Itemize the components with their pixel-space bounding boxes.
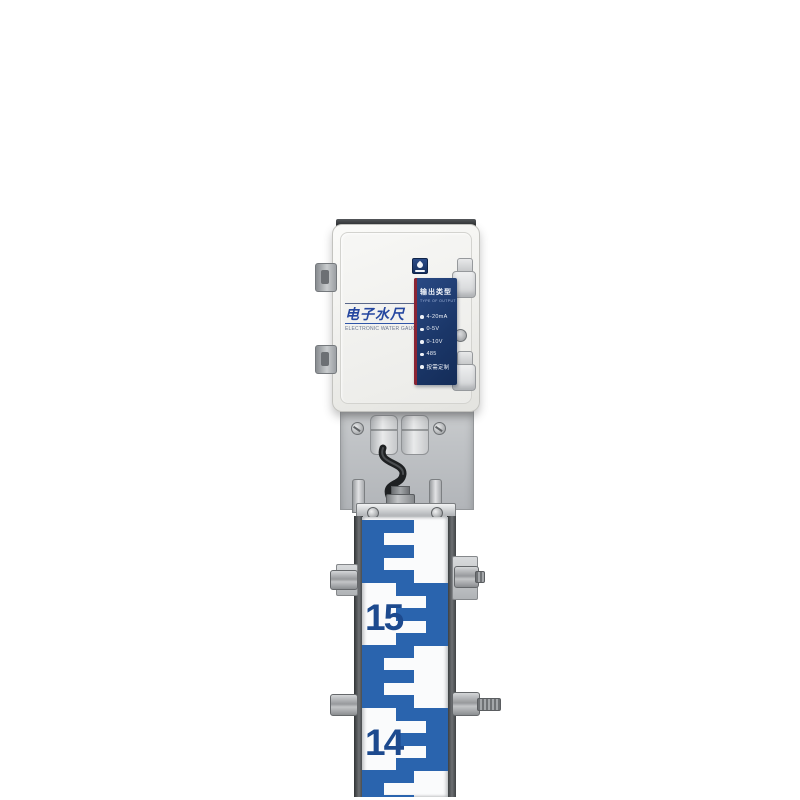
output-type-list: 4-20mA 0-5V 0-10V 485 按需定制 — [420, 311, 454, 374]
bolt-stud-right-upper — [475, 571, 485, 583]
hinge-bottom — [315, 345, 337, 374]
hinge-slot-icon — [321, 270, 329, 284]
bullet-icon — [420, 328, 424, 332]
bullet-icon — [420, 315, 424, 319]
gauge-e-section — [362, 770, 448, 797]
gauge-face: 15 14 — [362, 517, 448, 797]
list-item: 485 — [420, 348, 454, 361]
hinge-top — [315, 263, 337, 292]
hex-nut-left-lower — [330, 694, 358, 716]
plate-screw-right — [433, 422, 446, 435]
bullet-icon — [420, 353, 424, 357]
output-spec-panel: 输出类型 TYPE OF OUTPUT 4-20mA 0-5V 0-10V 48… — [414, 278, 457, 385]
label-bottom-rule — [345, 323, 415, 324]
gauge-number-15: 15 — [365, 599, 413, 636]
water-drop-icon — [412, 258, 428, 274]
product-label: 电子水尺 ELECTRONIC WATER GAUGE — [345, 303, 415, 332]
product-title: 电子水尺 — [345, 306, 415, 322]
label-top-rule — [345, 303, 415, 304]
hinge-slot-icon — [321, 352, 329, 366]
list-item: 0-5V — [420, 323, 454, 336]
bullet-icon — [420, 340, 424, 344]
droplet-glyph — [416, 261, 424, 269]
plate-screw-left — [351, 422, 364, 435]
list-item: 按需定制 — [420, 361, 454, 374]
panel-red-stripe — [414, 278, 417, 385]
hex-nut-left-upper — [330, 570, 358, 590]
gauge-number-14: 14 — [365, 724, 413, 761]
enclosure-box: 电子水尺 ELECTRONIC WATER GAUGE 输出类型 TYPE OF… — [332, 224, 480, 412]
bolt-stud-right-lower — [477, 698, 501, 711]
list-item: 0-10V — [420, 336, 454, 349]
panel-subheading: TYPE OF OUTPUT — [420, 299, 454, 303]
product-subtitle: ELECTRONIC WATER GAUGE — [345, 326, 415, 332]
bullet-icon — [420, 365, 424, 369]
list-item: 4-20mA — [420, 311, 454, 324]
wave-glyph — [415, 270, 425, 272]
hex-nut-right-lower — [452, 692, 480, 716]
panel-heading: 输出类型 — [420, 287, 454, 297]
product-photo: 电子水尺 ELECTRONIC WATER GAUGE 输出类型 TYPE OF… — [0, 0, 800, 800]
